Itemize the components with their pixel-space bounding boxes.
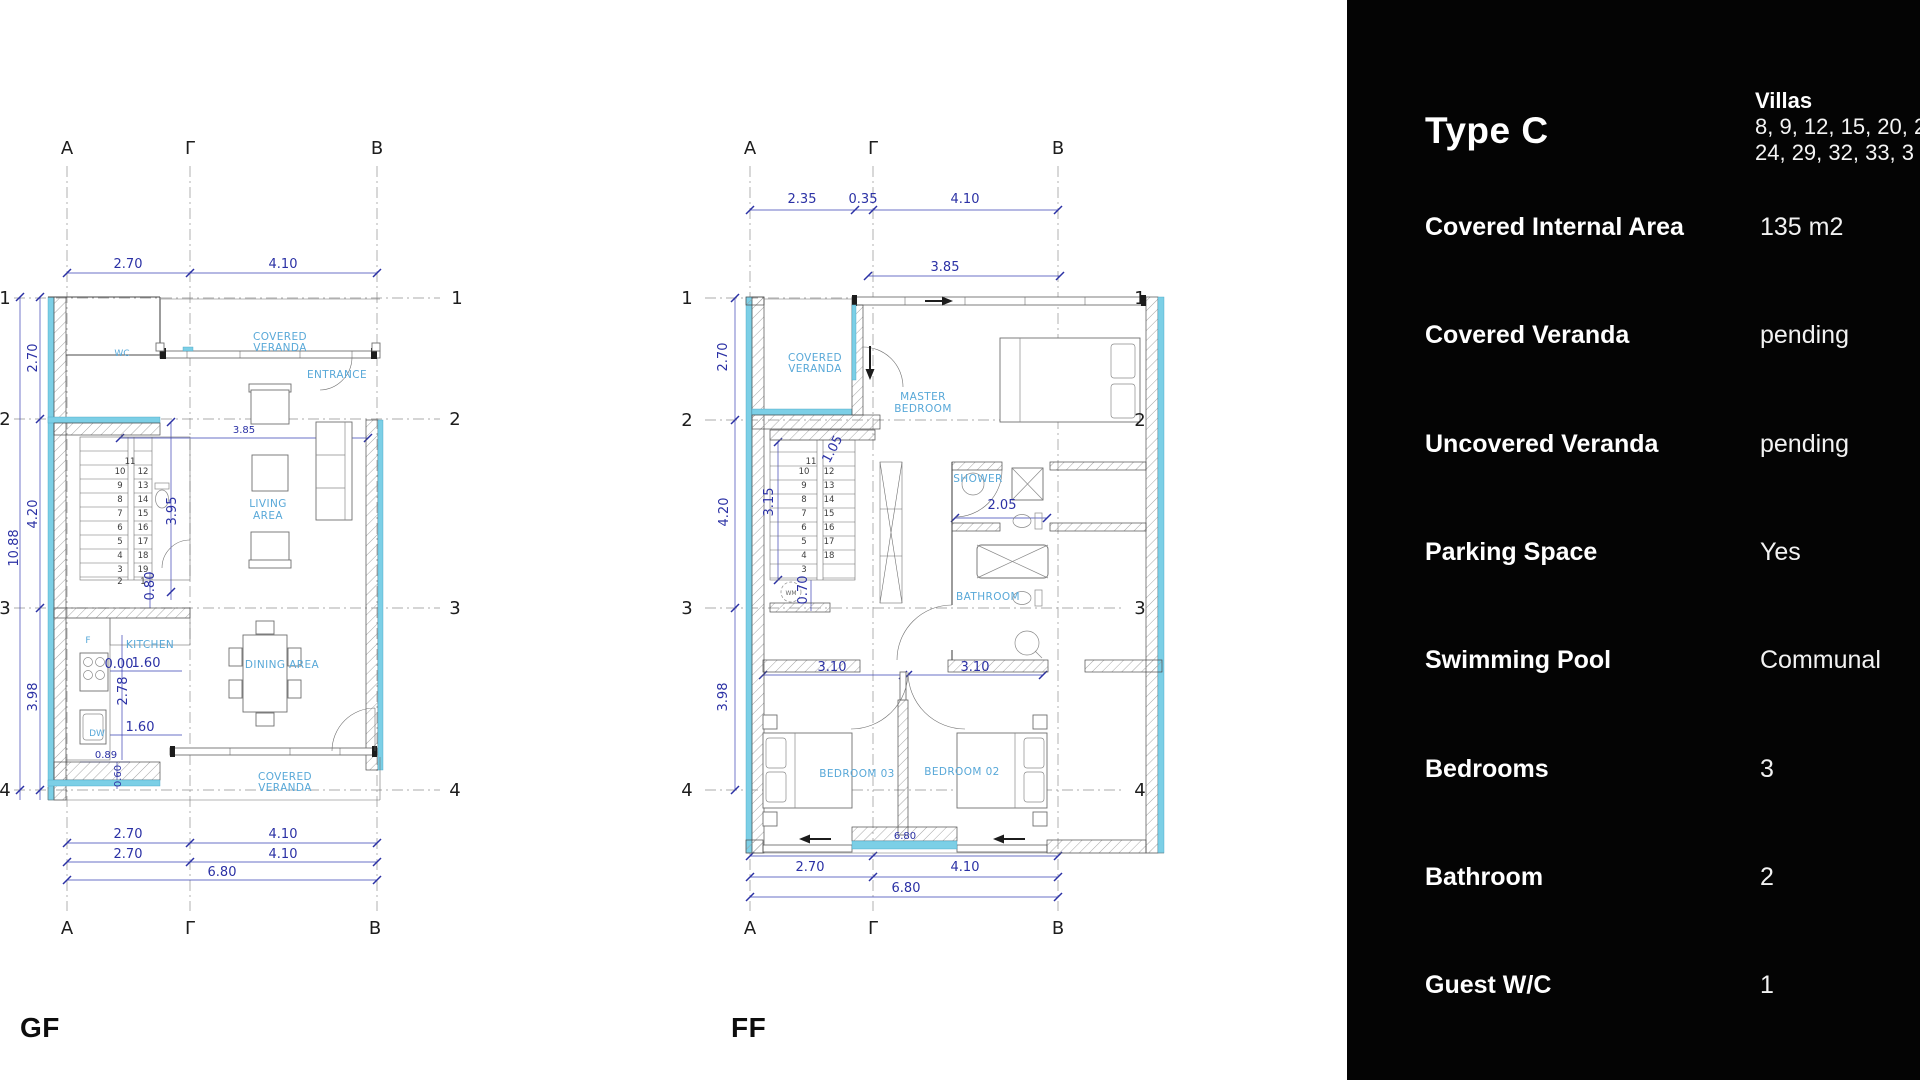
plan-text: 3 <box>1134 598 1145 619</box>
plan-text: 6.80 <box>892 881 921 896</box>
spec-label: Parking Space <box>1425 536 1597 568</box>
spec-value: 3 <box>1760 753 1774 785</box>
plan-text: 2.05 <box>988 498 1017 513</box>
plan-text: A <box>61 138 74 159</box>
plan-text: 4.10 <box>951 860 980 875</box>
spec-value: 135 m2 <box>1760 211 1843 243</box>
spec-label: Bathroom <box>1425 861 1543 893</box>
plan-text: 2 <box>681 410 692 431</box>
plan-text: 4 <box>681 780 692 801</box>
page: AΓBAΓB123412342.704.102.704.203.9810.883… <box>0 0 1920 1080</box>
plan-text: 0.70 <box>796 576 811 605</box>
spec-row: Parking SpaceYes <box>1347 536 1920 568</box>
plan-text: 2 <box>0 409 11 430</box>
plan-text: 6.80 <box>894 831 916 842</box>
plan-text: BEDROOM 03 <box>819 768 895 780</box>
plan-text: 2 <box>1134 410 1145 431</box>
plan-text: 18 <box>824 551 835 561</box>
plan-text: 2.70 <box>114 257 143 272</box>
plan-text: F <box>85 636 90 646</box>
plan-text: 1 <box>140 577 145 587</box>
plan-text: 10 <box>799 467 810 477</box>
plan-text: 4.10 <box>269 257 298 272</box>
spec-label: Uncovered Veranda <box>1425 428 1658 460</box>
spec-value: pending <box>1760 319 1849 351</box>
plan-text: 4.10 <box>951 192 980 207</box>
plan-text: SHOWER <box>953 473 1003 485</box>
plan-text: VERANDA <box>258 782 312 794</box>
plan-text: A <box>744 138 757 159</box>
info-panel: Type C Villas 8, 9, 12, 15, 20, 2 24, 29… <box>1347 0 1920 1080</box>
plan-text: B <box>1052 138 1064 159</box>
plan-text: BATHROOM <box>956 591 1020 603</box>
spec-label: Guest W/C <box>1425 969 1551 1001</box>
plan-text: 13 <box>138 481 149 491</box>
plan-text: 0.35 <box>849 192 878 207</box>
plan-text: 15 <box>138 509 149 519</box>
plan-text: 12 <box>138 467 149 477</box>
gf-dimensions <box>16 269 381 884</box>
plan-text: 3 <box>801 565 806 575</box>
plan-text: 18 <box>138 551 149 561</box>
plan-text: 4.10 <box>269 827 298 842</box>
plan-text: 6.80 <box>208 865 237 880</box>
plan-text: 4 <box>801 551 806 561</box>
plan-text: 3 <box>117 565 122 575</box>
plan-text: 16 <box>138 523 149 533</box>
plan-text: 5 <box>117 537 122 547</box>
spec-value: 1 <box>1760 969 1774 1001</box>
spec-row: Uncovered Verandapending <box>1347 428 1920 460</box>
plan-text: 3.85 <box>931 260 960 275</box>
plan-text: WC <box>114 349 129 359</box>
plan-text: 19 <box>138 565 149 575</box>
ff-bathrooms <box>962 468 1048 658</box>
plan-text: 3.98 <box>26 683 41 712</box>
spec-value: pending <box>1760 428 1849 460</box>
plan-text: KITCHEN <box>126 639 174 651</box>
plan-text: 3.15 <box>762 488 777 517</box>
plan-text: 0.00 <box>105 657 134 672</box>
gf-floor-label: GF <box>20 1012 60 1044</box>
plan-text: 1 <box>1134 288 1145 309</box>
plan-text: 3 <box>0 598 11 619</box>
plan-text: 4 <box>0 780 11 801</box>
plan-text: 9 <box>801 481 806 491</box>
plan-text: 0.89 <box>95 750 117 761</box>
plan-text: 10 <box>115 467 126 477</box>
spec-row: Covered Internal Area135 m2 <box>1347 211 1920 243</box>
plan-text: 4.20 <box>717 498 732 527</box>
plan-text: 6 <box>801 523 806 533</box>
plan-text: AREA <box>253 510 283 522</box>
plan-text: 2.70 <box>114 827 143 842</box>
plan-text: 15 <box>824 509 835 519</box>
plan-text: 16 <box>824 523 835 533</box>
plan-text: B <box>369 918 381 939</box>
plan-text: DINING AREA <box>245 659 320 671</box>
plan-text: 7 <box>117 509 122 519</box>
villas-numbers-line2: 24, 29, 32, 33, 3 <box>1755 140 1920 166</box>
plan-text: 2.70 <box>716 343 731 372</box>
plan-text: 3.85 <box>233 425 255 436</box>
plan-text: 1.60 <box>132 656 161 671</box>
plan-text: 3 <box>681 598 692 619</box>
plan-text: WM <box>785 590 796 597</box>
floor-plan-gf: AΓBAΓB123412342.704.102.704.203.9810.883… <box>0 90 520 970</box>
villas-numbers-line1: 8, 9, 12, 15, 20, 2 <box>1755 114 1920 140</box>
plan-text: 2 <box>117 577 122 587</box>
plan-text: 1 <box>681 288 692 309</box>
spec-row: Guest W/C1 <box>1347 969 1920 1001</box>
plan-text: LIVING <box>249 498 287 510</box>
plan-text: 12 <box>824 467 835 477</box>
plan-text: Γ <box>868 138 878 159</box>
plan-text: 2.35 <box>788 192 817 207</box>
plan-text: 13 <box>824 481 835 491</box>
plan-text: 17 <box>138 537 149 547</box>
plan-text: 1.60 <box>126 720 155 735</box>
plan-text: 4 <box>117 551 122 561</box>
plan-text: 8 <box>801 495 806 505</box>
plan-text: 2.70 <box>26 344 41 373</box>
plan-text: 11 <box>806 457 817 467</box>
plan-text: Γ <box>185 918 195 939</box>
plan-text: 8 <box>117 495 122 505</box>
plan-text: MASTER <box>900 391 946 403</box>
plan-text: 3.98 <box>716 683 731 712</box>
plan-text: A <box>744 918 757 939</box>
plan-text: 3.10 <box>818 660 847 675</box>
spec-value: Communal <box>1760 644 1881 676</box>
plan-text: A <box>61 918 74 939</box>
plan-text: VERANDA <box>253 342 307 354</box>
plan-text: 4.10 <box>269 847 298 862</box>
plan-text: 14 <box>824 495 835 505</box>
plan-text: ENTRANCE <box>307 369 367 381</box>
plan-text: 6 <box>117 523 122 533</box>
spec-row: Covered Verandapending <box>1347 319 1920 351</box>
plan-text: 3 <box>449 598 460 619</box>
plan-text: 7 <box>801 509 806 519</box>
plan-text: 1 <box>451 288 462 309</box>
plan-text: 10.88 <box>7 529 22 566</box>
spec-value: 2 <box>1760 861 1774 893</box>
plan-text: 17 <box>824 537 835 547</box>
villas-heading: Villas <box>1755 88 1920 114</box>
plan-text: 2.70 <box>796 860 825 875</box>
plan-text: DW <box>89 729 105 739</box>
plan-text: VERANDA <box>788 363 842 375</box>
unit-type-title: Type C <box>1425 110 1549 152</box>
spec-row: Bedrooms3 <box>1347 753 1920 785</box>
plan-text: 3.10 <box>961 660 990 675</box>
spec-row: Bathroom2 <box>1347 861 1920 893</box>
plan-text: Γ <box>185 138 195 159</box>
plan-text: 11 <box>125 457 136 467</box>
plan-text: 2 <box>449 409 460 430</box>
plan-text: 5 <box>801 537 806 547</box>
plan-text: B <box>1052 918 1064 939</box>
floor-plan-ff: AΓBAΓB123412342.350.354.103.852.704.203.… <box>545 90 1185 970</box>
plan-text: 9 <box>117 481 122 491</box>
plan-text: 14 <box>138 495 149 505</box>
plan-text: 0.60 <box>113 765 124 787</box>
plan-text: Γ <box>868 918 878 939</box>
plan-text: 2.70 <box>114 847 143 862</box>
plan-text: 1 <box>0 288 11 309</box>
ff-floor-label: FF <box>731 1012 766 1044</box>
plan-text: 4.20 <box>26 500 41 529</box>
spec-label: Swimming Pool <box>1425 644 1611 676</box>
gf-text-layer: AΓBAΓB123412342.704.102.704.203.9810.883… <box>0 138 463 939</box>
plan-text: 3.95 <box>165 497 180 526</box>
spec-row: Swimming PoolCommunal <box>1347 644 1920 676</box>
plan-text: BEDROOM 02 <box>924 766 1000 778</box>
spec-label: Covered Internal Area <box>1425 211 1684 243</box>
spec-value: Yes <box>1760 536 1801 568</box>
spec-label: Bedrooms <box>1425 753 1549 785</box>
plan-text: 4 <box>449 780 460 801</box>
plan-text: 2.78 <box>116 677 131 706</box>
spec-label: Covered Veranda <box>1425 319 1629 351</box>
plan-text: BEDROOM <box>894 403 952 415</box>
villas-list: Villas 8, 9, 12, 15, 20, 2 24, 29, 32, 3… <box>1755 88 1920 166</box>
plan-text: B <box>371 138 383 159</box>
plan-text: 4 <box>1134 780 1145 801</box>
